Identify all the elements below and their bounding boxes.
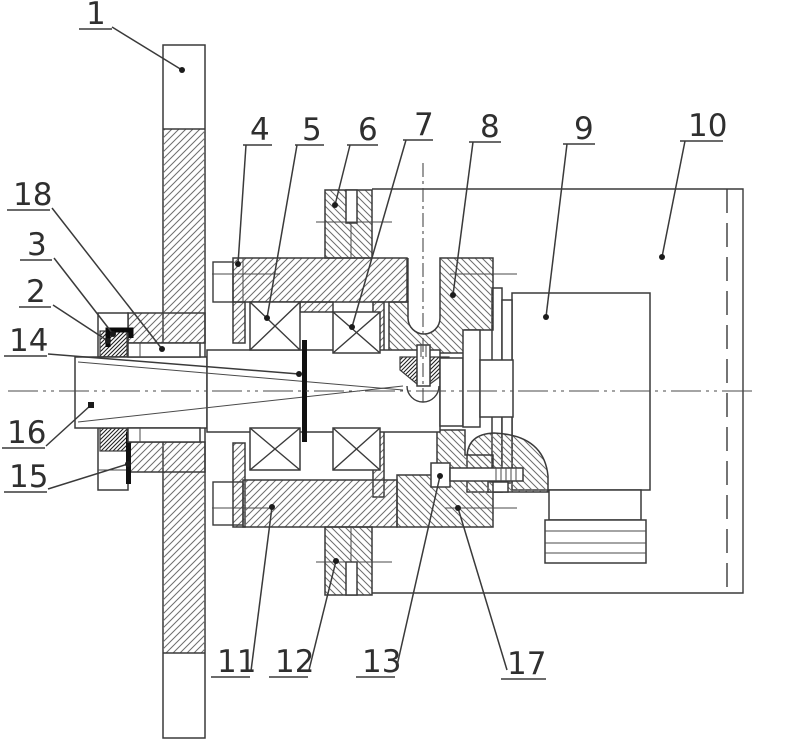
hub-lower: [128, 442, 205, 472]
leader-dot-4: [235, 261, 241, 267]
callout-11: 11: [211, 504, 275, 680]
seal-ring-lower: [100, 428, 127, 451]
part-number-10: 10: [688, 108, 727, 144]
part-number-5: 5: [302, 112, 322, 148]
leader-dot-2: [105, 338, 111, 344]
leader-dot-10: [659, 254, 665, 260]
housing-bottom-plate: [243, 480, 397, 527]
bolt-shank: [450, 468, 523, 481]
technical-drawing: 145678910183214161511121317: [0, 0, 800, 741]
flywheel-hatch-lower: [163, 472, 205, 653]
bolt-slot: [346, 562, 357, 595]
part-number-9: 9: [574, 111, 594, 147]
part-number-12: 12: [275, 644, 314, 680]
terminal-step-2: [545, 520, 646, 563]
part-number-11: 11: [217, 644, 256, 680]
bearing-5-lower: [250, 428, 300, 470]
bearing-7-lower: [333, 428, 380, 470]
leader-line-17: [458, 508, 507, 670]
leader-line-3: [54, 258, 113, 334]
part-number-17: 17: [507, 646, 546, 682]
leader-dot-3: [110, 331, 116, 337]
bearing-7-upper: [333, 312, 380, 353]
callout-10: 10: [659, 108, 727, 260]
leader-line-10: [662, 141, 685, 257]
part-number-7: 7: [414, 107, 434, 143]
callout-9: 9: [543, 111, 595, 320]
part-number-13: 13: [362, 644, 401, 680]
bolt-bottom: [316, 527, 392, 595]
leader-line-4: [238, 145, 246, 264]
callout-1: 1: [79, 0, 185, 73]
coupling-sleeve: [480, 360, 513, 417]
leader-dot-15: [125, 461, 131, 467]
drawing-page: 145678910183214161511121317: [0, 0, 800, 741]
leader-dot-16: [88, 402, 94, 408]
coupling-flange: [463, 330, 480, 427]
leader-dot-12: [333, 558, 339, 564]
leader-dot-8: [450, 292, 456, 298]
part-number-8: 8: [480, 109, 500, 145]
leader-line-9: [546, 144, 567, 317]
terminal-step-1: [549, 490, 641, 520]
part-number-2: 2: [26, 274, 46, 310]
leader-dot-11: [269, 504, 275, 510]
bearing-5-upper: [250, 302, 300, 350]
flywheel-hatch-upper: [163, 129, 205, 313]
part-number-18: 18: [13, 177, 52, 213]
callout-4: 4: [235, 112, 272, 267]
part-number-16: 16: [7, 415, 46, 451]
bolt-top: [316, 190, 392, 258]
part-number-6: 6: [358, 112, 378, 148]
leader-dot-1: [179, 67, 185, 73]
leader-dot-14: [296, 371, 302, 377]
part-number-4: 4: [250, 112, 270, 148]
bolt-slot: [346, 190, 357, 223]
housing-step: [300, 302, 333, 312]
motor: [512, 293, 650, 563]
part-number-3: 3: [27, 227, 47, 263]
leader-dot-17: [455, 505, 461, 511]
part-number-15: 15: [9, 459, 48, 495]
leader-dot-13: [437, 473, 443, 479]
gland-strip-lower: [128, 428, 200, 442]
housing-top-plate: [233, 258, 407, 302]
leader-dot-6: [332, 202, 338, 208]
leader-dot-7: [349, 324, 355, 330]
hub-upper: [128, 313, 205, 343]
leader-dot-9: [543, 314, 549, 320]
housing-left-wall-upper: [233, 302, 245, 343]
leader-dot-5: [264, 315, 270, 321]
spindle-nose: [440, 358, 463, 426]
part-number-1: 1: [86, 0, 106, 32]
leader-dot-18: [159, 346, 165, 352]
flange-recess-top: [213, 262, 233, 302]
part-number-14: 14: [9, 323, 48, 359]
